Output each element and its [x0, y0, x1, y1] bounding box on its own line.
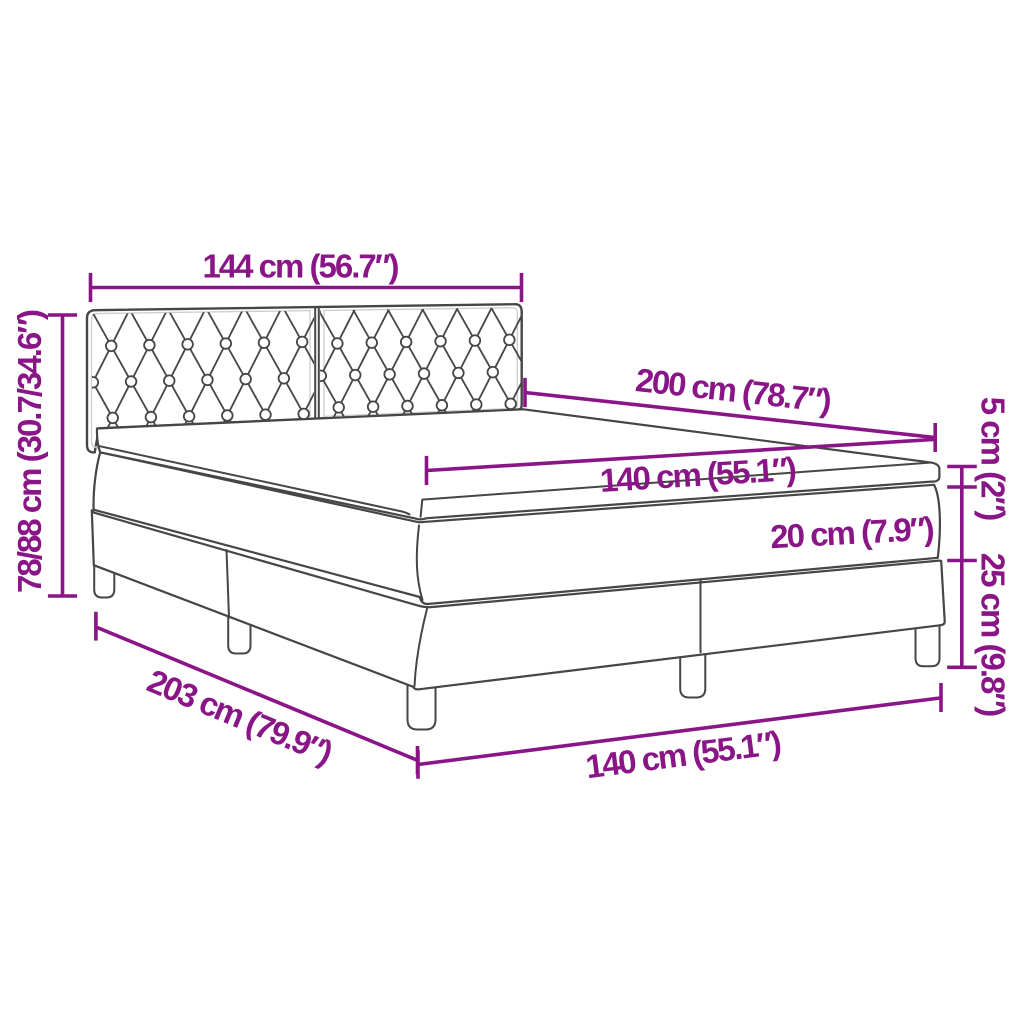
svg-text:5 cm (2″): 5 cm (2″)	[975, 397, 1012, 521]
svg-text:78/88 cm (30.7/34.6″): 78/88 cm (30.7/34.6″)	[11, 310, 48, 593]
svg-text:144 cm (56.7″): 144 cm (56.7″)	[202, 248, 398, 285]
svg-text:25 cm (9.8″): 25 cm (9.8″)	[975, 553, 1012, 716]
